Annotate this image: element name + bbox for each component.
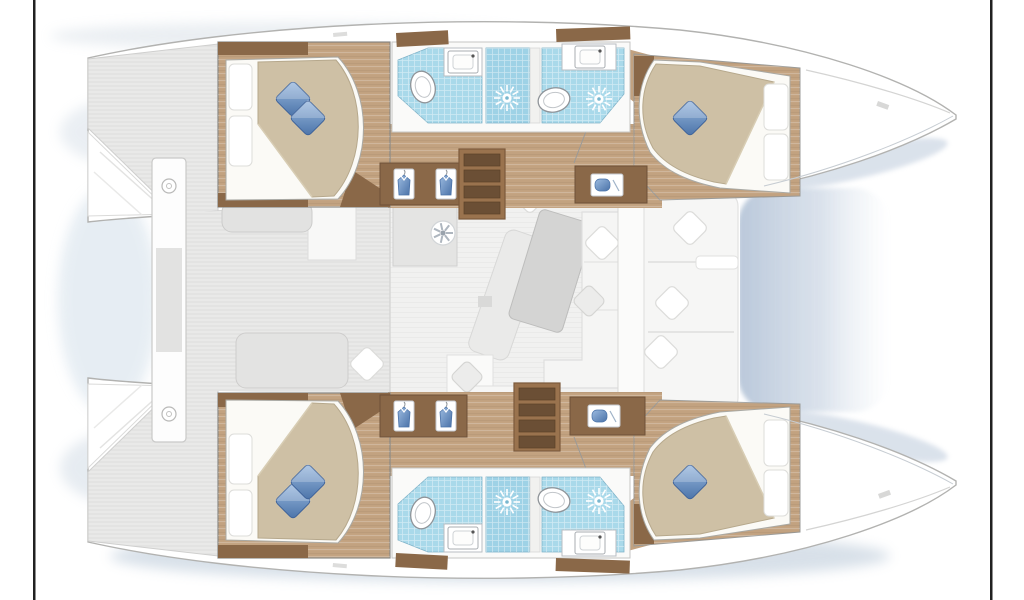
step-tread	[519, 420, 555, 432]
pillow	[229, 490, 252, 536]
step-tread	[519, 388, 555, 400]
beam-fitting-icon	[162, 179, 176, 193]
dark-trim	[218, 545, 308, 558]
upper-aft-berth	[226, 57, 364, 200]
dark-trim	[218, 42, 308, 55]
washbasin-icon	[448, 51, 478, 73]
beam-fitting-icon	[162, 407, 176, 421]
step-tread	[464, 186, 500, 198]
pillow	[764, 134, 788, 180]
step-tread	[519, 436, 555, 448]
step-tread	[464, 170, 500, 182]
step-tread	[464, 202, 500, 214]
pillow	[229, 64, 252, 110]
davit-beam	[152, 158, 186, 442]
washbasin-icon	[575, 46, 605, 68]
upper-companionway	[459, 149, 505, 219]
cooktop-vent-fan-icon	[431, 221, 455, 245]
shirt-on-hanger-icon	[436, 169, 456, 199]
armrest	[696, 256, 738, 269]
right-frame-line	[990, 0, 993, 600]
bridgedeck-shadow	[738, 188, 890, 412]
catamaran-plan	[0, 0, 1024, 600]
left-frame-line	[33, 0, 36, 600]
vanity-fixture-icon	[588, 405, 620, 427]
lower-forward-cabin	[634, 400, 800, 546]
forward-bulkhead	[618, 190, 644, 412]
pillow	[229, 434, 252, 484]
vanity-fixture-icon	[591, 174, 623, 196]
beam-center-section	[156, 248, 182, 352]
lower-aft-cabin	[218, 393, 390, 558]
pillow	[229, 116, 252, 166]
floor-hatch	[478, 296, 492, 307]
pillow	[764, 470, 788, 516]
floor-plan-canvas	[0, 0, 1024, 600]
hull-trim	[556, 558, 630, 574]
hull-trim	[556, 26, 630, 42]
lower-companionway	[514, 383, 560, 451]
step-tread	[464, 154, 500, 166]
step-tread	[519, 404, 555, 416]
upper-forward-cabin	[634, 54, 800, 200]
stern-gap-shadow	[58, 188, 158, 412]
pillow	[764, 420, 788, 466]
lower-aft-berth	[226, 400, 364, 543]
cockpit-seat	[236, 333, 348, 388]
lower-heads	[392, 468, 630, 574]
pillow	[764, 84, 788, 130]
hull-trim	[396, 30, 449, 47]
forward-cockpit	[618, 190, 738, 412]
hull-trim	[395, 553, 448, 570]
shirt-on-hanger-icon	[394, 401, 414, 431]
cockpit-cabinet	[308, 206, 356, 260]
washbasin-icon	[575, 532, 605, 554]
upper-heads	[392, 26, 630, 132]
shirt-on-hanger-icon	[436, 401, 456, 431]
shirt-on-hanger-icon	[394, 169, 414, 199]
washbasin-icon	[448, 527, 478, 549]
upper-aft-cabin	[218, 42, 390, 207]
